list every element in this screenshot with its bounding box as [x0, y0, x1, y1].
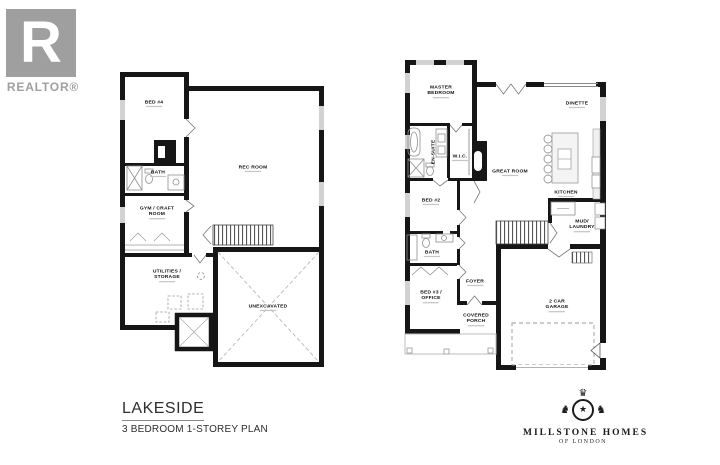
room-name: UTILITIES / STORAGE — [153, 268, 181, 280]
builder-brand: ♛ ♞ ★ ♞ MILLSTONE HOMES OF LONDON — [523, 391, 643, 445]
garage-side-door — [591, 343, 606, 358]
room-name: UNEXCAVATED — [249, 303, 288, 309]
dinette-window-wall — [544, 84, 598, 87]
brand-name: MILLSTONE HOMES — [523, 428, 643, 438]
room-label-bed2: BED #2 — [422, 191, 440, 211]
room-name: FOYER — [466, 278, 484, 284]
basement-doors — [186, 119, 211, 263]
plan-subtitle: 3 BEDROOM 1-STOREY PLAN — [122, 424, 268, 435]
room-name: DINETTE — [566, 100, 589, 106]
garage-steps — [572, 252, 592, 263]
basement-plan: BED #4 REC ROOM BATH GYM / CRAFT ROOM UT… — [118, 60, 330, 368]
room-name: BED #2 — [422, 197, 440, 203]
room-dims — [549, 311, 565, 312]
room-name: COVERED PORCH — [463, 312, 489, 324]
room-name: GREAT ROOM — [492, 168, 528, 174]
fireplace-nook — [474, 151, 482, 171]
room-name: MASTER BEDROOM — [427, 84, 454, 96]
gym-closet — [125, 233, 184, 250]
room-dims — [149, 218, 165, 219]
left-supporter-icon: ♞ — [560, 403, 570, 416]
room-dims — [150, 176, 166, 177]
room-dims — [502, 175, 518, 176]
room-label-main-bath: BATH — [424, 243, 440, 263]
basement-stairs — [213, 225, 273, 245]
crown-icon: ♛ — [579, 388, 588, 399]
room-name: MUD/ LAUNDRY — [569, 218, 594, 230]
garage-door-dashed — [512, 323, 594, 365]
main-floor-plan: MASTER BEDROOM DINETTE EN-SUITE W.I.C. G… — [400, 53, 615, 375]
room-label-master: MASTER BEDROOM — [427, 78, 454, 104]
brand-subtitle: OF LONDON — [523, 439, 643, 445]
room-dims — [574, 231, 590, 232]
room-label-kitchen: KITCHEN — [554, 183, 577, 203]
room-dims — [468, 325, 484, 326]
island-stools — [544, 135, 552, 183]
room-dims — [424, 256, 440, 257]
millstone-crest: ♛ ♞ ★ ♞ — [553, 391, 613, 425]
room-dims — [260, 310, 276, 311]
room-label-great-room: GREAT ROOM — [492, 162, 528, 182]
room-dims — [146, 106, 162, 107]
room-dims — [452, 160, 468, 161]
realtor-monogram: R — [20, 9, 62, 77]
room-label-garage: 2 CAR GARAGE — [546, 292, 569, 318]
room-label-unexcavated: UNEXCAVATED — [249, 297, 288, 317]
plan-title: LAKESIDE — [122, 400, 204, 421]
room-dims — [467, 285, 483, 286]
room-name: KITCHEN — [554, 189, 577, 195]
room-name: BED #3 / OFFICE — [420, 289, 442, 301]
room-dims — [558, 196, 574, 197]
right-supporter-icon: ♞ — [596, 403, 606, 416]
room-dims — [159, 281, 175, 282]
realtor-monogram-box: R — [6, 9, 76, 77]
room-name: GYM / CRAFT ROOM — [140, 205, 174, 217]
crest-ring-icon: ★ — [572, 399, 594, 421]
room-label-bed4: BED #4 — [145, 93, 163, 113]
main-stairs — [496, 221, 548, 244]
room-label-bath: BATH — [150, 163, 166, 183]
room-name: EN-SUITE — [430, 140, 436, 165]
room-label-wic: W.I.C. — [452, 147, 468, 167]
room-name: BATH — [151, 169, 165, 175]
room-name: BATH — [425, 249, 439, 255]
room-name: REC ROOM — [239, 164, 268, 170]
room-label-covered-porch: COVERED PORCH — [463, 306, 489, 332]
porch-deck — [405, 334, 496, 354]
realtor-logo: R REALTOR® — [6, 9, 80, 94]
bed3-closet — [412, 267, 448, 275]
kitchen-counter — [592, 129, 600, 199]
room-label-rec-room: REC ROOM — [239, 158, 268, 178]
room-dims — [245, 171, 261, 172]
room-dims — [569, 107, 585, 108]
room-name: W.I.C. — [453, 153, 468, 159]
room-dims — [423, 204, 439, 205]
realtor-wordmark: REALTOR® — [6, 80, 80, 94]
cold-cellar — [177, 315, 211, 349]
room-label-gym-craft: GYM / CRAFT ROOM — [140, 199, 174, 225]
room-dims — [423, 302, 439, 303]
room-label-utilities: UTILITIES / STORAGE — [153, 262, 181, 288]
kitchen-island — [552, 133, 578, 183]
title-block: LAKESIDE 3 BEDROOM 1-STOREY PLAN — [122, 400, 268, 435]
room-label-ensuite: EN-SUITE — [424, 140, 436, 165]
room-dims — [433, 97, 449, 98]
main-doors — [433, 84, 570, 305]
room-label-foyer: FOYER — [466, 272, 484, 292]
room-label-dinette: DINETTE — [566, 94, 589, 114]
room-name: BED #4 — [145, 99, 163, 105]
room-label-mud-laundry: MUD/ LAUNDRY — [569, 212, 594, 238]
floorplan-sheet: R REALTOR® — [0, 0, 720, 465]
room-label-bed3-office: BED #3 / OFFICE — [420, 283, 442, 309]
room-name: 2 CAR GARAGE — [546, 298, 569, 310]
